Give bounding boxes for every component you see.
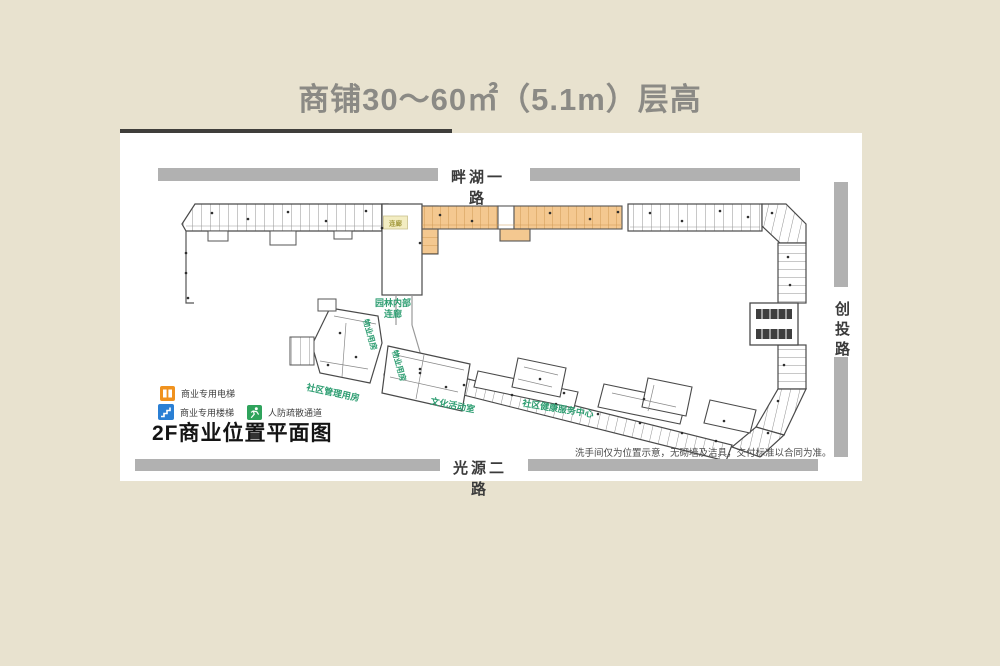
road-bar-right-bottom [834, 357, 848, 457]
label-garden-corridor-line1: 园林内部 [375, 297, 411, 308]
disclaimer-text: 洗手间仅为位置示意，无砌墙及洁具，交付标准以合同为准。 [575, 445, 835, 459]
label-garden-corridor-line2: 连廊 [384, 308, 402, 319]
floorplan-panel: 连廊 [120, 133, 862, 481]
road-bar-top-left [158, 168, 438, 181]
road-bar-top-right [530, 168, 800, 181]
road-label-bottom: 光源二路 [445, 457, 515, 499]
shop-strip-highlight [422, 206, 622, 254]
legend-item-elevator: 商业专用电梯 [160, 386, 235, 401]
label-community-mgmt: 社区管理用房 [305, 381, 361, 403]
road-label-top: 畔湖一路 [443, 166, 513, 208]
road-label-right: 创投路 [831, 291, 852, 371]
elevator-icon [160, 386, 175, 401]
corridor-block: 连廊 [382, 204, 422, 295]
road-bar-right-top [834, 182, 848, 287]
legend-label-elevator: 商业专用电梯 [181, 387, 235, 400]
stair-block [750, 303, 798, 345]
shop-strip-top-right [628, 204, 806, 243]
plan-title: 2F商业位置平面图 [152, 417, 333, 447]
corridor-box-label: 连廊 [389, 219, 403, 228]
shop-strip-top-left [182, 204, 388, 303]
road-bar-bottom-left [135, 459, 440, 471]
page: 商铺30～60㎡（5.1m）层高 [0, 0, 1000, 666]
road-bar-bottom-right [528, 459, 818, 471]
page-title: 商铺30～60㎡（5.1m）层高 [0, 80, 1000, 120]
